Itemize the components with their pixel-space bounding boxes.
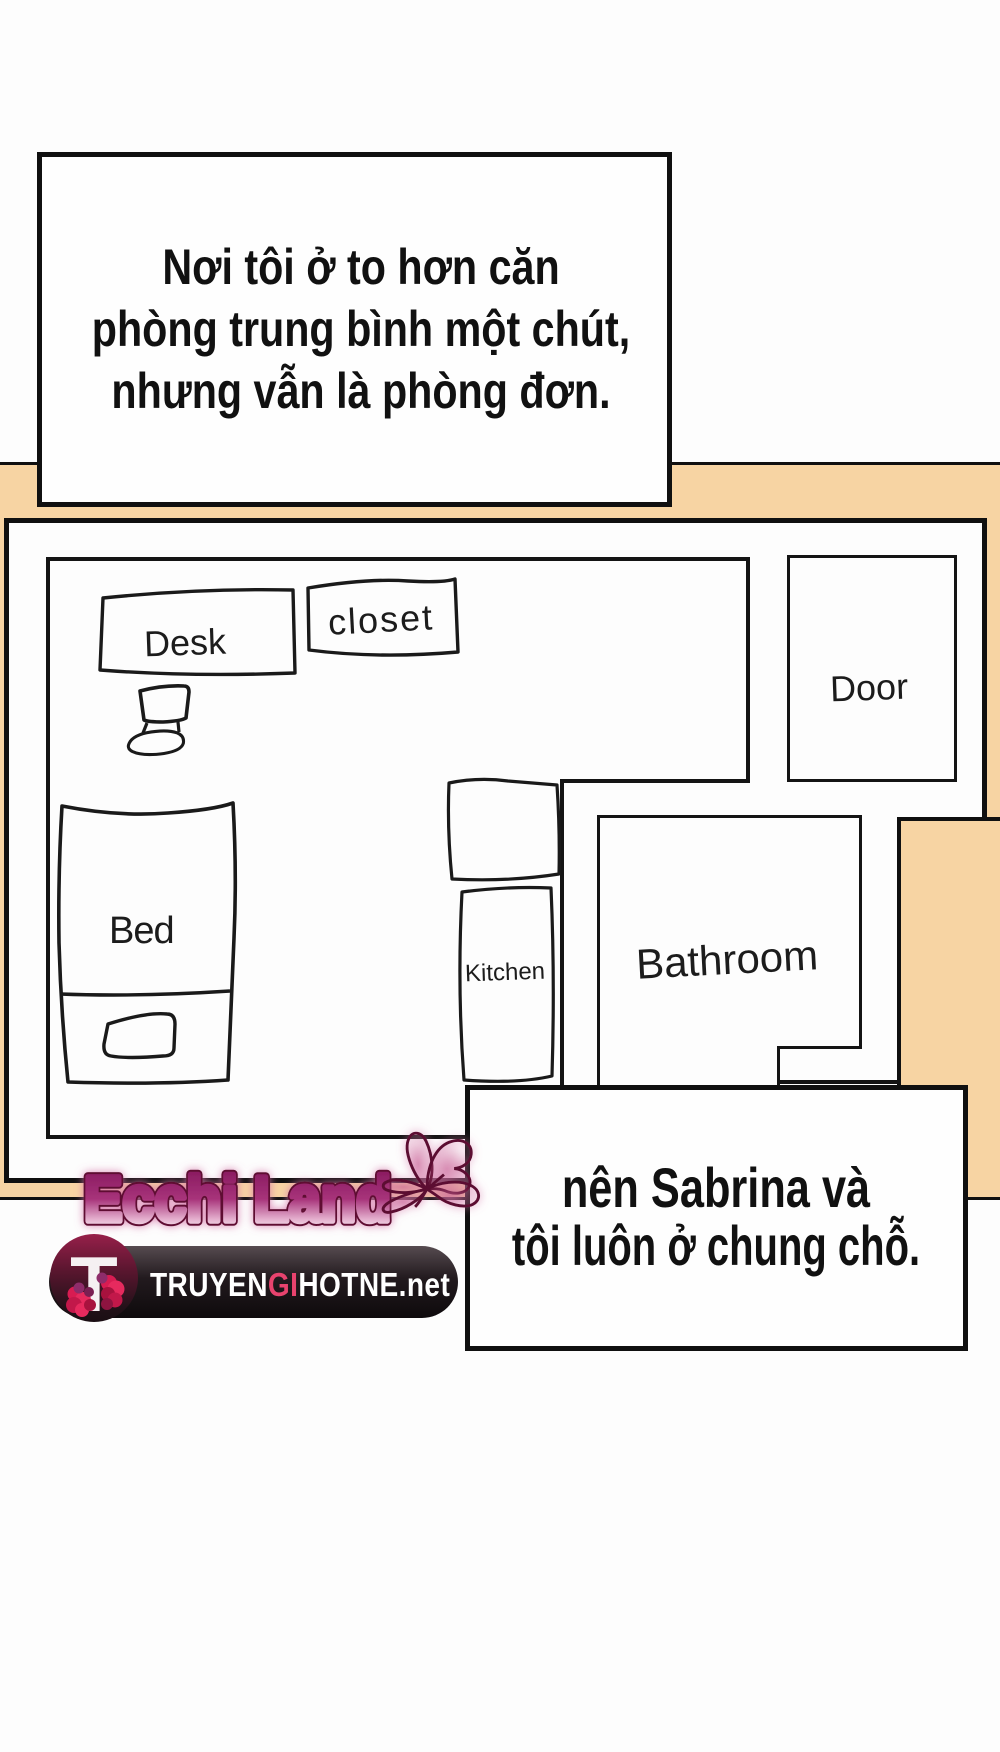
svg-text:Ecchi Land: Ecchi Land — [84, 1163, 391, 1234]
